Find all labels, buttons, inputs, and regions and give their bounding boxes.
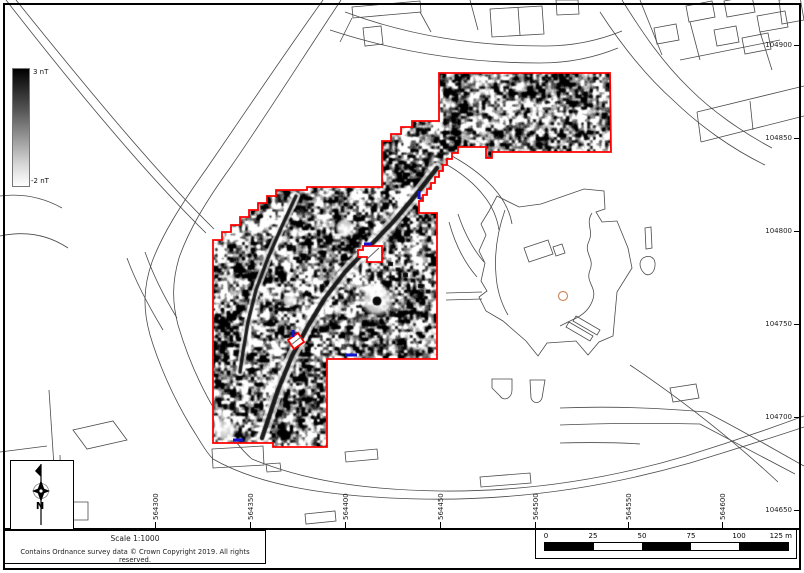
- easting-label: 564500: [532, 493, 540, 520]
- excluded-area-hatch: [291, 248, 379, 345]
- grid-tick: [794, 231, 801, 232]
- northing-label: 104850: [750, 134, 792, 142]
- scalebar-end-label: 125 m: [770, 532, 792, 540]
- grid-tick: [794, 45, 801, 46]
- grid-tick: [794, 417, 801, 418]
- north-arrow-box: N: [10, 460, 74, 530]
- survey-map-page: 3 nT -2 nT 104900 104850 104800 104750 1…: [0, 0, 804, 573]
- scalebar-tick-label: 50: [638, 532, 647, 540]
- northing-label: 104650: [750, 506, 792, 514]
- easting-label: 564450: [437, 493, 445, 520]
- grid-tick: [794, 510, 801, 511]
- easting-label: 564300: [152, 493, 160, 520]
- scalebar-tick-label: 75: [687, 532, 696, 540]
- scale-bar-box: 0 25 50 75 100 125 m: [535, 529, 797, 559]
- easting-label: 564600: [719, 493, 727, 520]
- map-info-box: Scale 1:1000 Contains Ordnance survey da…: [4, 530, 266, 564]
- map-scale-text: Scale 1:1000: [5, 534, 265, 543]
- survey-area-outline: [213, 73, 611, 447]
- northing-label: 104750: [750, 320, 792, 328]
- northing-label: 104700: [750, 413, 792, 421]
- easting-label: 564400: [342, 493, 350, 520]
- scalebar-tick-label: 0: [544, 532, 548, 540]
- north-arrow-icon: [11, 461, 71, 527]
- north-label: N: [11, 501, 69, 512]
- colorbar-max-label: 3 nT: [33, 68, 48, 76]
- scale-bar: [544, 542, 789, 551]
- scalebar-tick-label: 100: [732, 532, 745, 540]
- northing-label: 104900: [750, 41, 792, 49]
- northing-label: 104800: [750, 227, 792, 235]
- copyright-text: Contains Ordnance survey data © Crown Co…: [5, 548, 265, 564]
- nT-colorbar: [12, 68, 30, 187]
- easting-label: 564550: [625, 493, 633, 520]
- grid-tick: [794, 324, 801, 325]
- grid-tick: [794, 138, 801, 139]
- colorbar-min-label: -2 nT: [31, 177, 49, 185]
- easting-label: 564350: [247, 493, 255, 520]
- scalebar-tick-label: 25: [589, 532, 598, 540]
- survey-grid-markers: [233, 191, 419, 440]
- survey-overlay: [0, 0, 804, 573]
